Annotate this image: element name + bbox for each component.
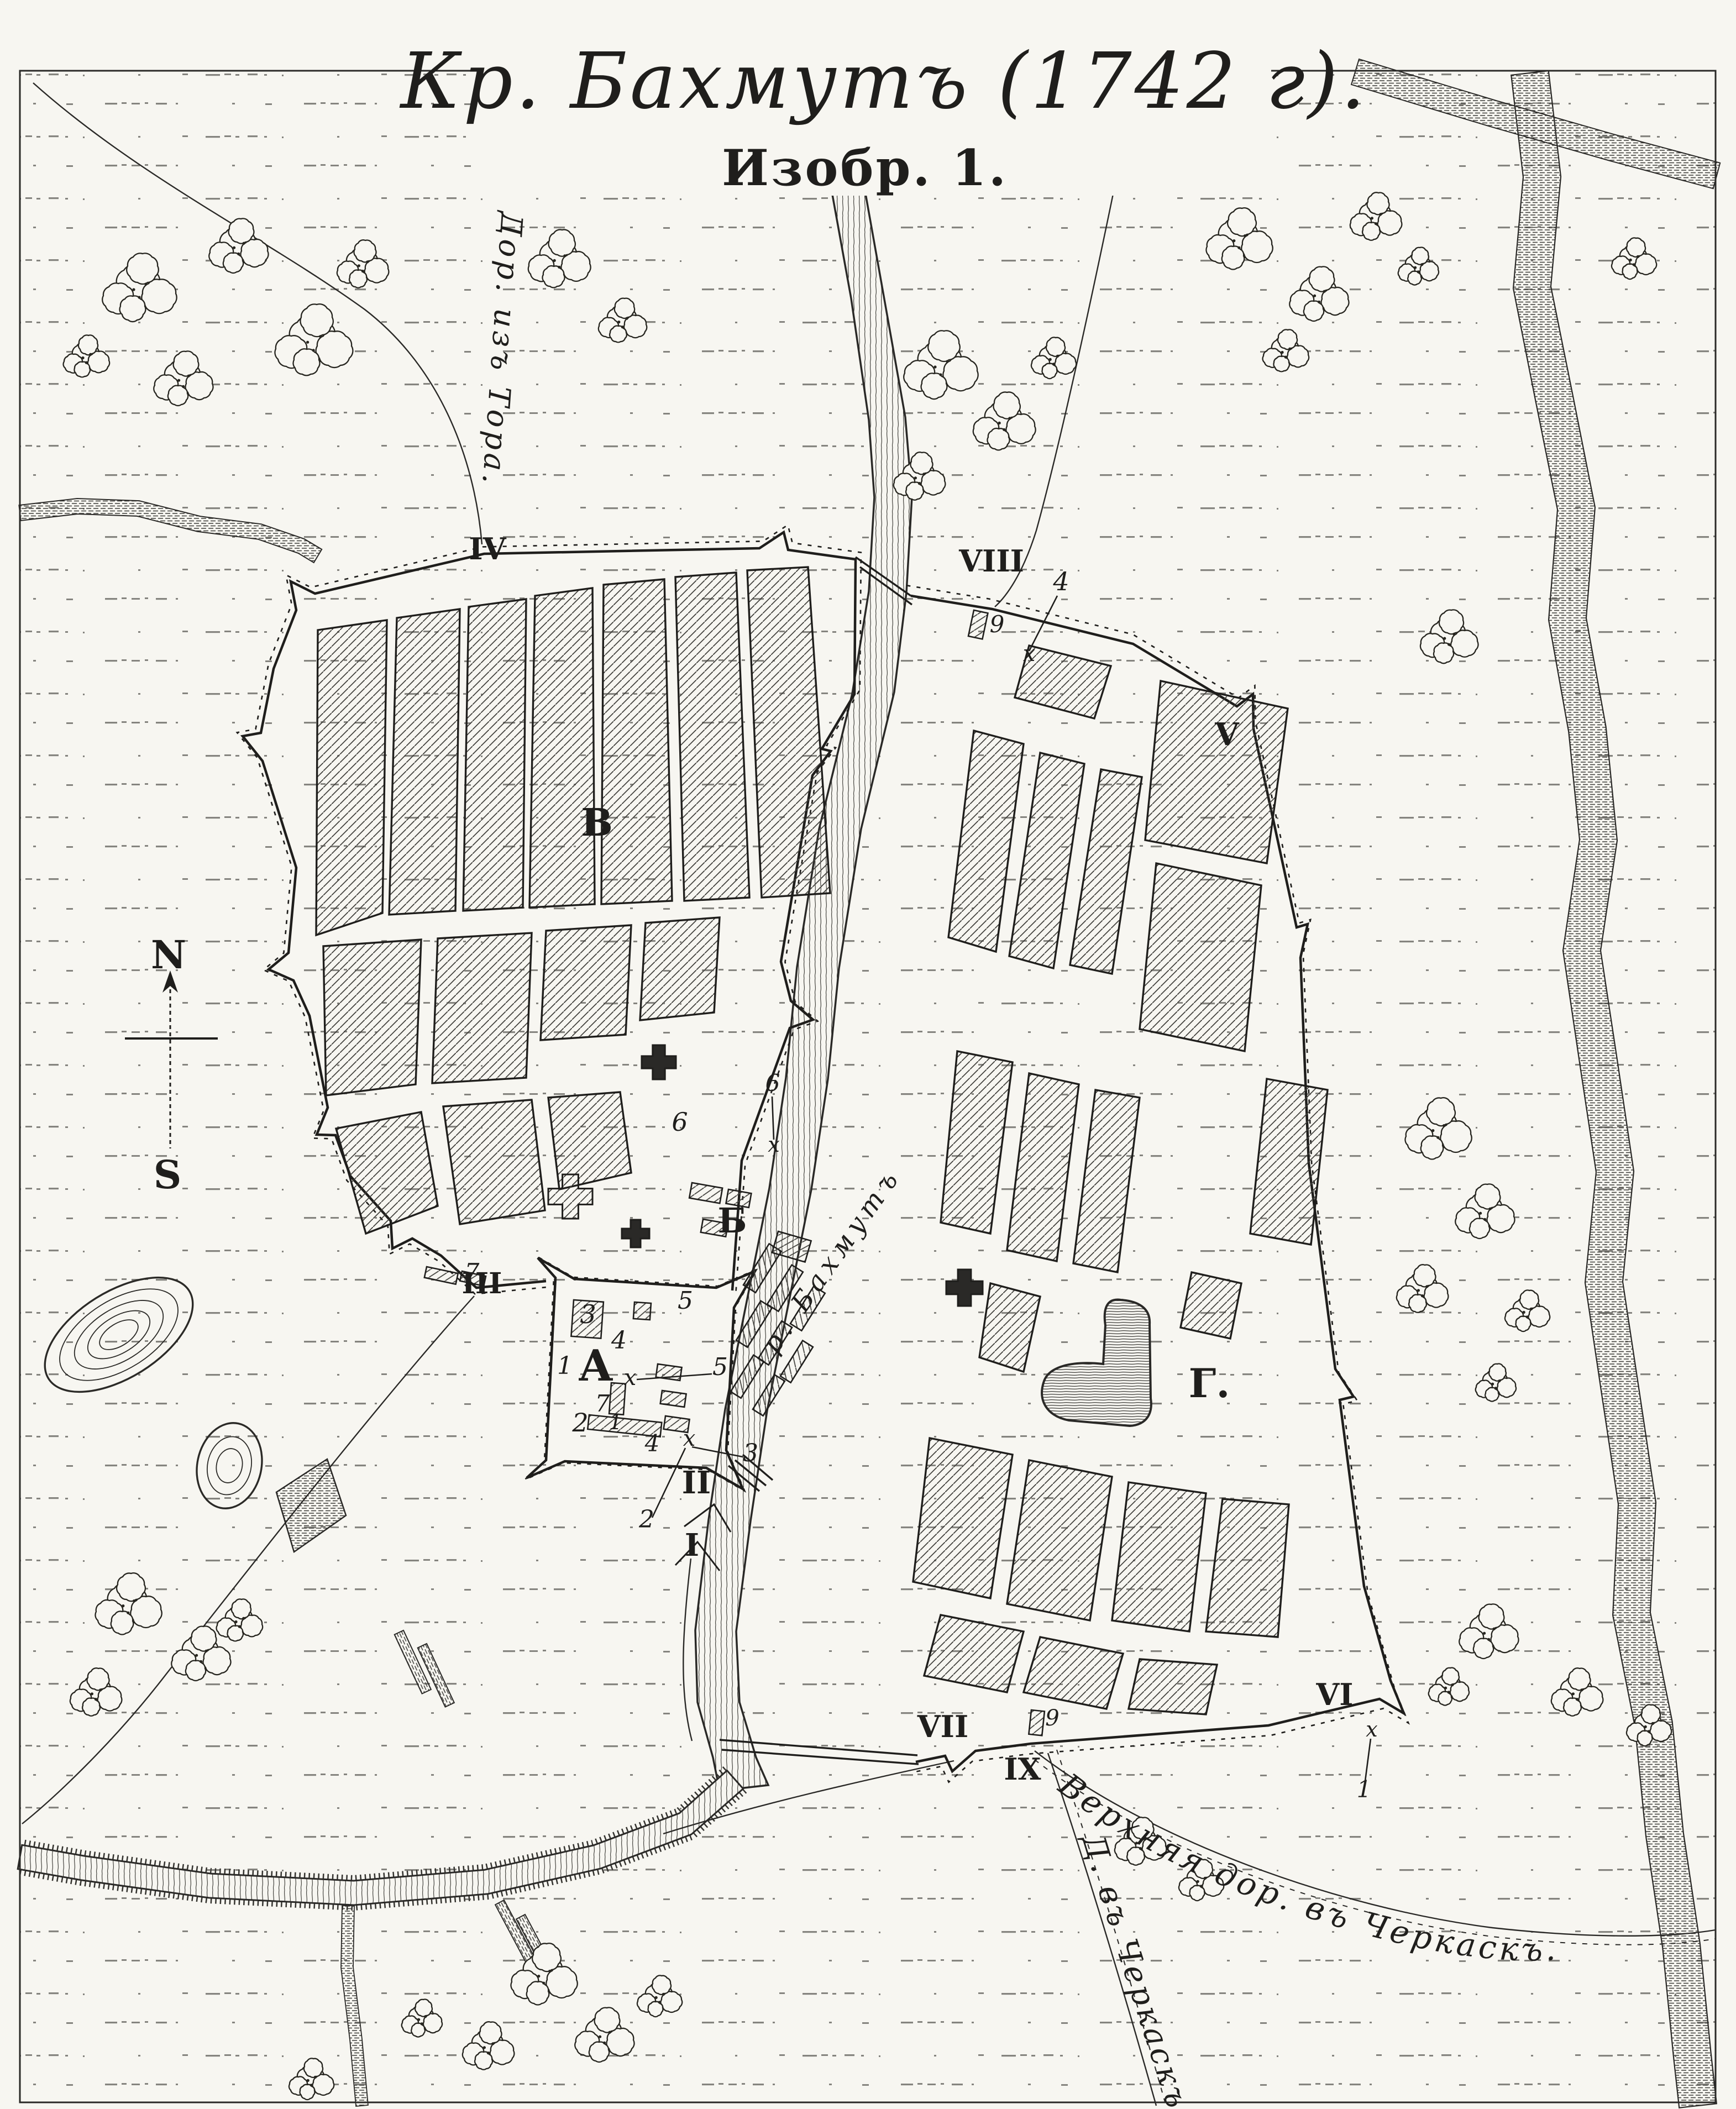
tree-dot bbox=[1288, 348, 1291, 350]
tree-dot bbox=[1049, 358, 1052, 361]
tree-icon bbox=[479, 2022, 501, 2044]
tree-dot bbox=[487, 2052, 490, 2054]
tree-dot bbox=[1237, 246, 1240, 249]
tree-icon bbox=[411, 2023, 425, 2037]
tree-icon bbox=[615, 298, 634, 318]
tree-dot bbox=[312, 349, 315, 351]
tree-dot bbox=[1008, 417, 1011, 419]
tree-dot bbox=[939, 373, 942, 376]
tree-dot bbox=[1003, 428, 1005, 431]
label-marks-x_south: х bbox=[683, 1426, 696, 1451]
tree-dot bbox=[1651, 1722, 1654, 1725]
tree-dot bbox=[1451, 1683, 1454, 1686]
tree-icon bbox=[1046, 337, 1065, 356]
tree-icon bbox=[1438, 1692, 1452, 1706]
tree-icon bbox=[1228, 208, 1256, 236]
tree-dot bbox=[1483, 1632, 1486, 1635]
tree-icon bbox=[74, 362, 90, 377]
label-marks-n3_citadel: 3 bbox=[580, 1299, 596, 1329]
tree-dot bbox=[238, 1625, 241, 1628]
tree-dot bbox=[662, 1993, 665, 1996]
tree-dot bbox=[1489, 1208, 1492, 1210]
tree-dot bbox=[95, 1698, 97, 1701]
tree-dot bbox=[233, 246, 235, 249]
tree-dot bbox=[1379, 213, 1382, 216]
tree-dot bbox=[914, 476, 917, 479]
tree-dot bbox=[922, 473, 925, 475]
tree-icon bbox=[300, 2085, 314, 2100]
label-marks-x_center: х bbox=[768, 1132, 779, 1157]
tree-icon bbox=[127, 253, 159, 284]
tree-icon bbox=[1564, 1698, 1581, 1715]
tree-dot bbox=[242, 1617, 245, 1620]
tree-icon bbox=[648, 2002, 663, 2017]
label-bastions-i: I bbox=[685, 1527, 699, 1564]
town-block bbox=[640, 917, 720, 1020]
town-block bbox=[1181, 1272, 1241, 1339]
town-block bbox=[1140, 863, 1261, 1051]
tree-dot bbox=[1443, 637, 1446, 640]
tree-icon bbox=[993, 392, 1020, 418]
tree-dot bbox=[491, 2042, 494, 2045]
tree-dot bbox=[609, 2031, 611, 2034]
compass-north-label: N bbox=[151, 932, 186, 978]
label-bastions-vi: VI bbox=[1315, 1677, 1353, 1712]
town-block bbox=[463, 599, 526, 911]
town-block bbox=[675, 573, 749, 901]
tree-dot bbox=[537, 1975, 540, 1977]
tree-icon bbox=[1042, 364, 1057, 379]
tree-dot bbox=[603, 2042, 606, 2044]
tree-icon bbox=[191, 1626, 217, 1651]
town-block bbox=[432, 933, 532, 1083]
label-marks-n1_citadel: 1 bbox=[557, 1352, 573, 1380]
tree-dot bbox=[1375, 222, 1377, 225]
tree-icon bbox=[117, 1573, 145, 1601]
tree-dot bbox=[1052, 363, 1055, 365]
tree-dot bbox=[177, 379, 180, 382]
tree-icon bbox=[1485, 1388, 1499, 1402]
label-marks-n6b_center: 6 bbox=[765, 1069, 780, 1097]
tree-icon bbox=[232, 1599, 251, 1619]
tree-dot bbox=[310, 2084, 313, 2086]
tree-dot bbox=[127, 1612, 129, 1614]
tree-dot bbox=[1281, 351, 1283, 354]
tree-dot bbox=[558, 266, 560, 269]
label-marks-n9_south: 9 bbox=[1045, 1706, 1059, 1731]
town-block bbox=[316, 620, 387, 935]
tree-icon bbox=[928, 330, 960, 361]
tree-icon bbox=[1470, 1219, 1490, 1239]
tree-icon bbox=[527, 1981, 549, 2005]
tree-icon bbox=[227, 1626, 243, 1641]
tree-dot bbox=[182, 385, 185, 388]
tree-dot bbox=[548, 1970, 551, 1972]
label-bastions-ix: IX bbox=[1004, 1751, 1041, 1787]
tree-dot bbox=[553, 259, 556, 262]
tree-icon bbox=[475, 2052, 492, 2069]
town-block bbox=[548, 1092, 631, 1189]
town-block bbox=[1112, 1482, 1206, 1631]
tree-icon bbox=[1222, 246, 1245, 269]
tree-icon bbox=[1479, 1604, 1504, 1629]
label-areas-east_town: Г. bbox=[1189, 1360, 1230, 1407]
label-marks-n6a_center: 6 bbox=[672, 1107, 688, 1137]
label-bastions-ii: II bbox=[682, 1465, 711, 1501]
tree-dot bbox=[243, 242, 245, 245]
tree-icon bbox=[1408, 271, 1422, 285]
tree-icon bbox=[349, 270, 367, 287]
figure-caption: Изобр. 1. bbox=[722, 139, 1008, 197]
tree-icon bbox=[548, 229, 575, 256]
tree-dot bbox=[1421, 1294, 1424, 1297]
tree-dot bbox=[89, 353, 92, 356]
tree-dot bbox=[187, 375, 190, 377]
tree-dot bbox=[1493, 1628, 1496, 1630]
tree-dot bbox=[306, 341, 309, 344]
tree-icon bbox=[987, 428, 1009, 450]
tree-dot bbox=[1479, 1212, 1482, 1215]
tree-dot bbox=[234, 1620, 237, 1623]
tree-icon bbox=[532, 1943, 561, 1971]
tree-dot bbox=[195, 1654, 198, 1657]
tree-icon bbox=[542, 266, 564, 287]
tree-icon bbox=[186, 1661, 206, 1681]
tree-icon bbox=[1489, 1363, 1506, 1381]
tree-dot bbox=[1576, 1698, 1578, 1701]
label-marks-n5a_suburb: 5 bbox=[678, 1287, 693, 1315]
tree-dot bbox=[237, 253, 240, 255]
tree-dot bbox=[1580, 1688, 1583, 1691]
tree-dot bbox=[1494, 1387, 1497, 1389]
tree-icon bbox=[1413, 1265, 1435, 1287]
tree-dot bbox=[1487, 1638, 1490, 1641]
tree-icon bbox=[354, 240, 376, 262]
tree-icon bbox=[415, 1999, 432, 2016]
tree-dot bbox=[1443, 1124, 1445, 1127]
tree-dot bbox=[1523, 1311, 1525, 1314]
tree-dot bbox=[421, 2022, 423, 2025]
tree-icon bbox=[589, 2042, 609, 2062]
label-marks-n5b_suburb: 5 bbox=[712, 1353, 728, 1381]
tree-icon bbox=[168, 386, 188, 406]
tree-dot bbox=[366, 260, 369, 263]
tree-dot bbox=[1530, 1308, 1533, 1310]
tree-dot bbox=[658, 2001, 661, 2003]
tree-dot bbox=[655, 1996, 658, 1999]
tree-icon bbox=[1473, 1639, 1493, 1659]
tree-dot bbox=[81, 356, 84, 359]
tree-dot bbox=[599, 2035, 601, 2038]
building bbox=[660, 1391, 686, 1407]
tree-dot bbox=[1200, 1885, 1203, 1887]
tree-dot bbox=[998, 422, 1001, 424]
tree-dot bbox=[1526, 1315, 1529, 1318]
tree-icon bbox=[1434, 643, 1454, 663]
tree-icon bbox=[610, 326, 627, 342]
tree-icon bbox=[223, 253, 243, 273]
tree-icon bbox=[174, 351, 199, 376]
tree-dot bbox=[1637, 255, 1639, 258]
tree-icon bbox=[1442, 1667, 1459, 1685]
tree-icon bbox=[1515, 1316, 1530, 1331]
town-block bbox=[529, 588, 595, 907]
tree-dot bbox=[483, 2046, 486, 2049]
tree-icon bbox=[1475, 1184, 1501, 1209]
building bbox=[633, 1302, 651, 1320]
tree-dot bbox=[1244, 234, 1246, 237]
label-marks-n2_south: 2 bbox=[638, 1505, 654, 1534]
tree-icon bbox=[906, 482, 924, 500]
tree-dot bbox=[1572, 1692, 1575, 1695]
tree-dot bbox=[1648, 1730, 1650, 1733]
tree-icon bbox=[300, 304, 333, 337]
label-marks-n1_southeast: 1 bbox=[1357, 1776, 1372, 1803]
building bbox=[1029, 1710, 1044, 1735]
tree-icon bbox=[1367, 192, 1389, 214]
tree-icon bbox=[1439, 610, 1464, 634]
tree-icon bbox=[910, 452, 932, 474]
tree-icon bbox=[1641, 1704, 1660, 1723]
tree-dot bbox=[1629, 259, 1632, 261]
tree-dot bbox=[1491, 1383, 1494, 1386]
tree-dot bbox=[1425, 1285, 1428, 1288]
tree-dot bbox=[1447, 1691, 1450, 1693]
town-block bbox=[323, 940, 421, 1095]
tree-icon bbox=[1309, 266, 1335, 291]
tree-dot bbox=[133, 1599, 135, 1602]
tree-dot bbox=[1431, 1129, 1434, 1132]
label-marks-n1b_citadel: 1 bbox=[609, 1410, 622, 1434]
tree-icon bbox=[229, 218, 254, 243]
label-marks-n7_west: 7 bbox=[465, 1258, 480, 1286]
tree-dot bbox=[314, 2076, 317, 2079]
tree-icon bbox=[1278, 329, 1297, 349]
bakhmut-fortress-map: IIIIIIIVVVIVIIVIIIIXАБВГ.1234714х55х3266… bbox=[0, 0, 1736, 2109]
town-block bbox=[541, 925, 631, 1040]
label-marks-x_north: х bbox=[1023, 641, 1036, 667]
tree-dot bbox=[1371, 217, 1373, 219]
tree-dot bbox=[1420, 263, 1423, 266]
tree-dot bbox=[918, 482, 921, 485]
label-marks-n4b_citadel: 4 bbox=[644, 1430, 660, 1457]
tree-icon bbox=[1189, 1886, 1204, 1901]
tree-dot bbox=[1436, 1136, 1439, 1139]
tree-dot bbox=[1452, 633, 1455, 636]
label-bastions-v: V bbox=[1214, 716, 1240, 753]
tree-dot bbox=[424, 2015, 427, 2018]
tree-icon bbox=[652, 1975, 671, 1994]
town-block bbox=[1129, 1659, 1217, 1714]
tree-icon bbox=[1409, 1294, 1426, 1312]
label-marks-n7_citadel: 7 bbox=[595, 1390, 610, 1417]
tree-dot bbox=[1483, 1218, 1486, 1221]
tree-dot bbox=[1323, 290, 1326, 293]
label-areas-suburb: Б bbox=[718, 1200, 747, 1241]
tree-dot bbox=[1318, 301, 1320, 303]
tree-dot bbox=[85, 361, 88, 364]
tree-dot bbox=[144, 282, 147, 285]
tree-dot bbox=[542, 1982, 545, 1985]
tree-icon bbox=[595, 2007, 620, 2032]
tree-icon bbox=[1637, 1731, 1652, 1746]
tree-icon bbox=[1421, 1136, 1444, 1159]
tree-dot bbox=[1056, 355, 1059, 358]
tree-dot bbox=[319, 335, 322, 338]
tree-icon bbox=[1304, 301, 1324, 321]
town-block bbox=[601, 579, 672, 904]
tree-dot bbox=[621, 326, 624, 328]
town-block bbox=[443, 1100, 545, 1224]
tree-dot bbox=[361, 270, 364, 272]
tree-icon bbox=[82, 1698, 100, 1715]
tree-dot bbox=[626, 317, 628, 320]
tree-icon bbox=[921, 373, 947, 399]
tree-dot bbox=[1498, 1379, 1501, 1382]
label-marks-n4_north: 4 bbox=[1052, 566, 1069, 596]
label-marks-n4_citadel: 4 bbox=[611, 1326, 627, 1355]
tree-dot bbox=[1447, 643, 1450, 646]
tree-icon bbox=[1273, 356, 1289, 372]
tree-icon bbox=[1412, 247, 1429, 264]
map-title: Кр. Бахмутъ (1742 г). bbox=[399, 36, 1368, 127]
tree-icon bbox=[1627, 238, 1645, 256]
tree-dot bbox=[946, 360, 948, 363]
label-marks-n2_citadel: 2 bbox=[571, 1408, 588, 1438]
label-bastions-iv: IV bbox=[469, 531, 506, 566]
tree-dot bbox=[138, 296, 140, 298]
tree-dot bbox=[1414, 266, 1417, 269]
label-marks-n3_south: 3 bbox=[743, 1439, 758, 1467]
tree-dot bbox=[417, 2018, 420, 2021]
tree-icon bbox=[87, 1668, 109, 1690]
scanned-map-page: IIIIIIIVVVIVIIVIIIIXАБВГ.1234714х55х3266… bbox=[0, 0, 1736, 2109]
tree-dot bbox=[1313, 295, 1316, 297]
label-marks-n9_north: 9 bbox=[990, 611, 1005, 638]
tree-dot bbox=[933, 365, 936, 368]
tree-dot bbox=[99, 1688, 102, 1691]
tree-dot bbox=[1633, 263, 1635, 266]
tree-dot bbox=[200, 1660, 202, 1663]
tree-icon bbox=[120, 296, 146, 322]
tree-dot bbox=[563, 254, 566, 257]
label-areas-citadel: А bbox=[578, 1341, 613, 1391]
tree-icon bbox=[1362, 222, 1380, 240]
tree-dot bbox=[1444, 1687, 1447, 1690]
tree-dot bbox=[307, 2079, 310, 2082]
compass-south-label: S bbox=[154, 1152, 182, 1198]
tree-dot bbox=[122, 1604, 124, 1607]
label-bastions-vii: VII bbox=[917, 1709, 968, 1744]
tree-dot bbox=[1417, 1289, 1420, 1292]
tree-dot bbox=[91, 1692, 93, 1695]
tree-dot bbox=[358, 264, 360, 267]
tree-dot bbox=[132, 288, 135, 291]
tree-icon bbox=[1622, 264, 1637, 279]
tree-icon bbox=[304, 2058, 323, 2077]
town-block bbox=[1145, 681, 1288, 863]
tree-dot bbox=[1284, 356, 1287, 359]
tree-icon bbox=[78, 335, 98, 355]
tree-icon bbox=[1520, 1290, 1539, 1309]
tree-dot bbox=[617, 321, 620, 323]
tree-dot bbox=[205, 1650, 208, 1652]
tree-icon bbox=[1568, 1668, 1590, 1690]
tree-dot bbox=[1644, 1725, 1647, 1728]
tree-icon bbox=[1426, 1098, 1455, 1126]
label-bastions-viii: VIII bbox=[958, 543, 1024, 579]
tree-dot bbox=[1417, 270, 1420, 273]
label-areas-west_town: В bbox=[581, 801, 612, 845]
label-marks-x_southeast: х bbox=[1366, 1717, 1377, 1741]
tree-dot bbox=[1232, 239, 1235, 242]
tree-icon bbox=[111, 1611, 134, 1634]
label-marks-x_citadel: х bbox=[624, 1365, 637, 1391]
town-block bbox=[389, 609, 460, 915]
tree-icon bbox=[293, 349, 319, 375]
